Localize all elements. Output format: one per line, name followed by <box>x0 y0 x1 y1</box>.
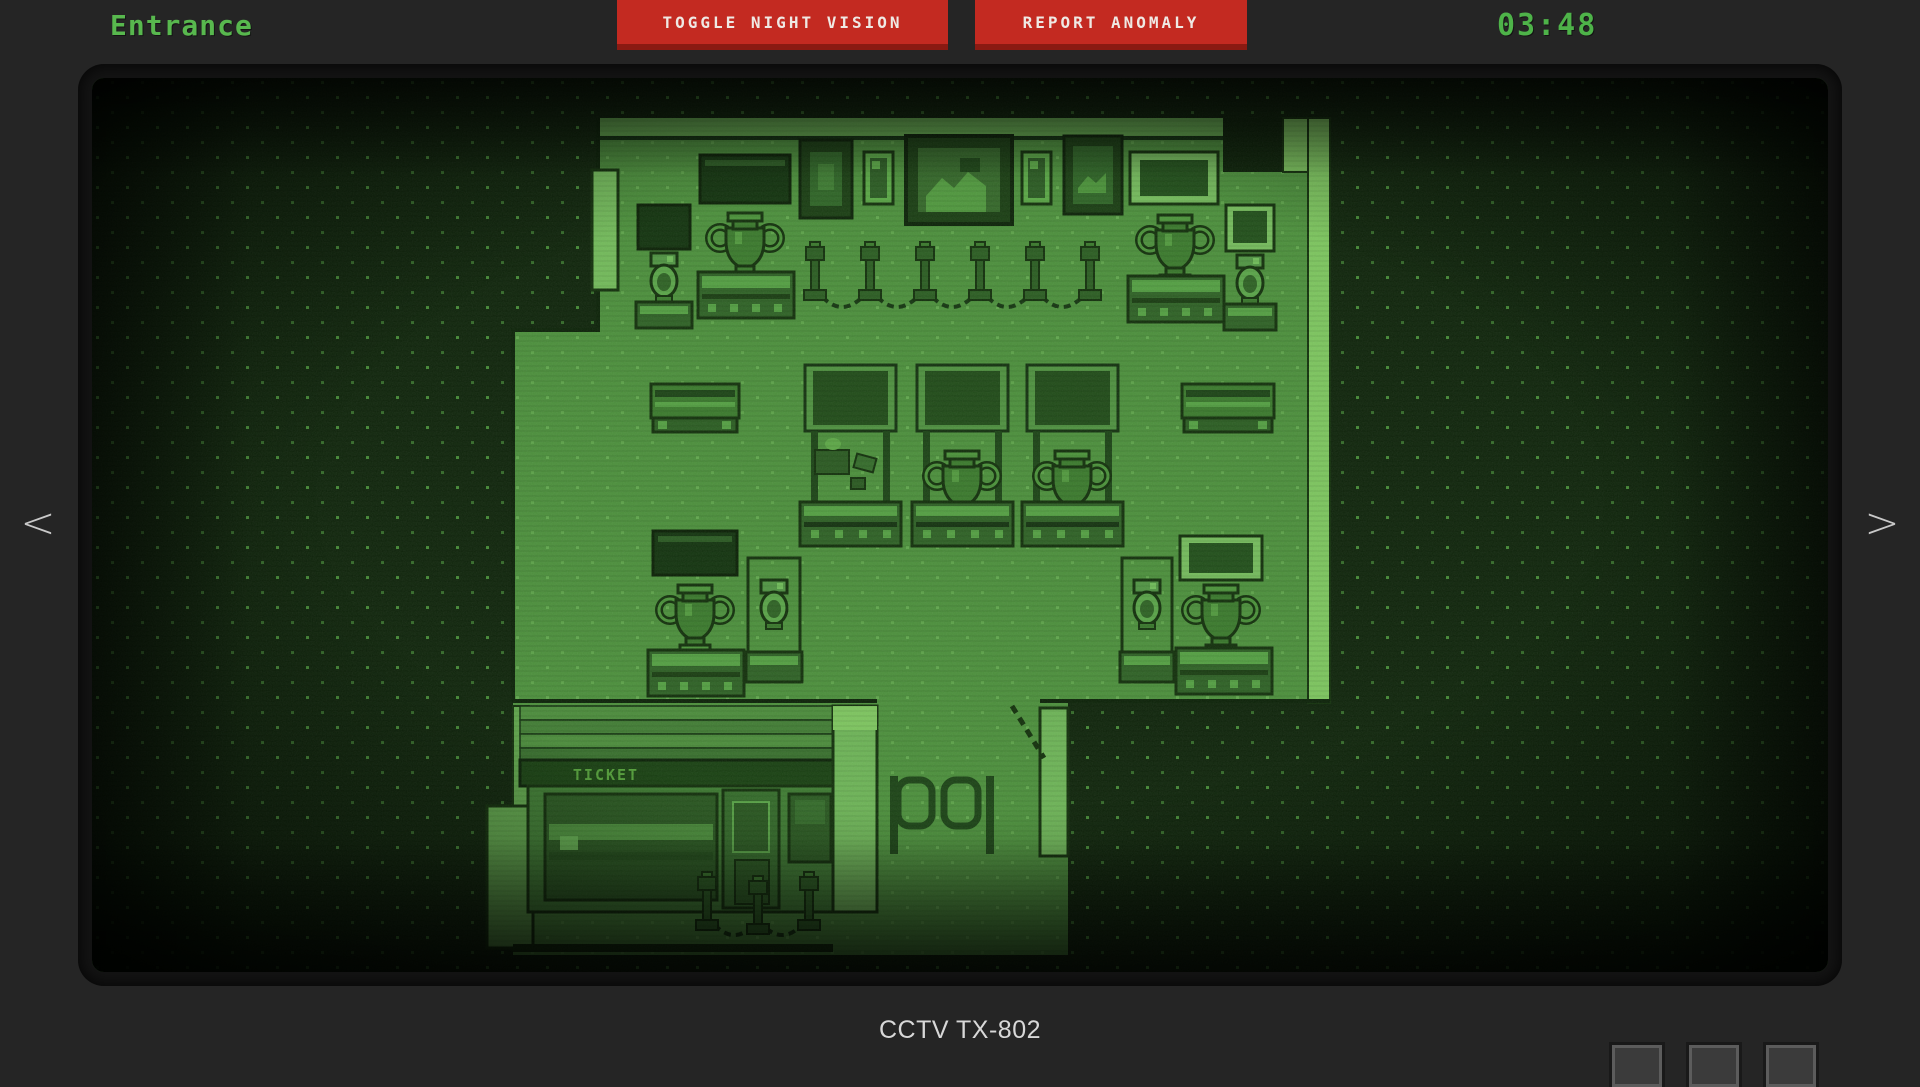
clock-display: 03:48 <box>1497 8 1597 43</box>
monitor-button-2[interactable] <box>1689 1045 1739 1087</box>
camera-feed: TICKET <box>92 78 1828 972</box>
next-camera-button[interactable]: > <box>1860 498 1904 558</box>
toggle-night-vision-button[interactable]: TOGGLE NIGHT VISION <box>617 0 948 50</box>
camera-name-label: Entrance <box>110 9 253 42</box>
cctv-game-screen: { "header": { "camera_name": "Entrance",… <box>0 0 1920 1073</box>
camera-id-label: CCTV TX-802 <box>0 1016 1920 1045</box>
camera-scene: TICKET <box>92 78 1828 972</box>
report-anomaly-button[interactable]: REPORT ANOMALY <box>975 0 1247 50</box>
monitor-button-3[interactable] <box>1766 1045 1816 1087</box>
film-grain <box>92 78 1828 972</box>
monitor-button-1[interactable] <box>1612 1045 1662 1087</box>
prev-camera-button[interactable]: < <box>16 498 60 558</box>
monitor-screen: TICKET <box>78 64 1842 986</box>
